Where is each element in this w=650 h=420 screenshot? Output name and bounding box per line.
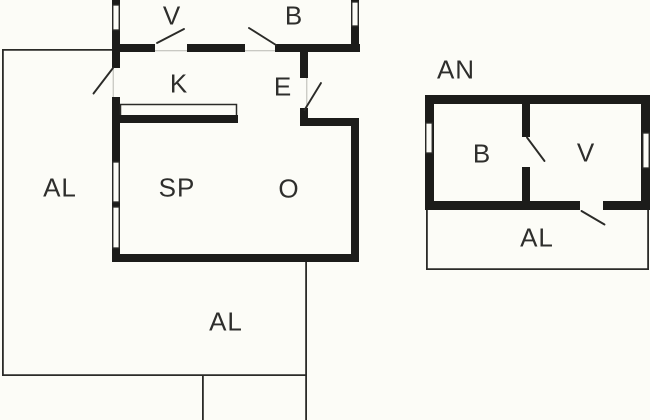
- wall-main-bottom: [112, 254, 359, 262]
- main-house-walls: [112, 0, 360, 262]
- wall-entry-nook-bottom: [300, 118, 359, 126]
- wall-main-interior-front: [112, 44, 360, 52]
- room-label-annex-v: V: [577, 138, 595, 169]
- room-label-sp: SP: [159, 173, 196, 204]
- door-opening-annex-exterior: [580, 201, 603, 210]
- wall-annex-bottom: [425, 201, 650, 210]
- wall-kitchen-half: [112, 115, 238, 123]
- room-label-k: K: [170, 69, 188, 100]
- room-label-al-bottom: AL: [209, 307, 243, 338]
- window-sp-upper: [113, 162, 119, 202]
- wall-annex-top: [425, 95, 650, 104]
- room-label-b: B: [285, 1, 303, 32]
- window-annex-left: [426, 123, 432, 153]
- door-swing-b: [249, 28, 276, 45]
- wall-main-right: [351, 118, 359, 262]
- room-label-o: O: [278, 174, 299, 205]
- door-swing-porch: [94, 68, 114, 94]
- room-label-e: E: [274, 72, 292, 103]
- room-label-annex-al: AL: [520, 223, 554, 254]
- window-sp-lower: [113, 207, 119, 248]
- annex-openings-windows: [426, 123, 649, 210]
- room-label-v: V: [163, 1, 181, 32]
- room-label-annex-b: B: [473, 139, 491, 170]
- kitchen-counter: [121, 105, 237, 117]
- door-swing-annex-exterior: [582, 211, 605, 225]
- window-v-left: [113, 5, 119, 30]
- floor-plan-drawing: [0, 0, 650, 420]
- room-label-al-left: AL: [43, 173, 77, 204]
- floor-plan-canvas: V B K E AL SP O AL AN B V AL: [0, 0, 650, 420]
- window-annex-right: [643, 133, 649, 168]
- porch-outline-path: [3, 50, 306, 375]
- annex-title: AN: [437, 55, 475, 86]
- window-b-right: [352, 2, 358, 26]
